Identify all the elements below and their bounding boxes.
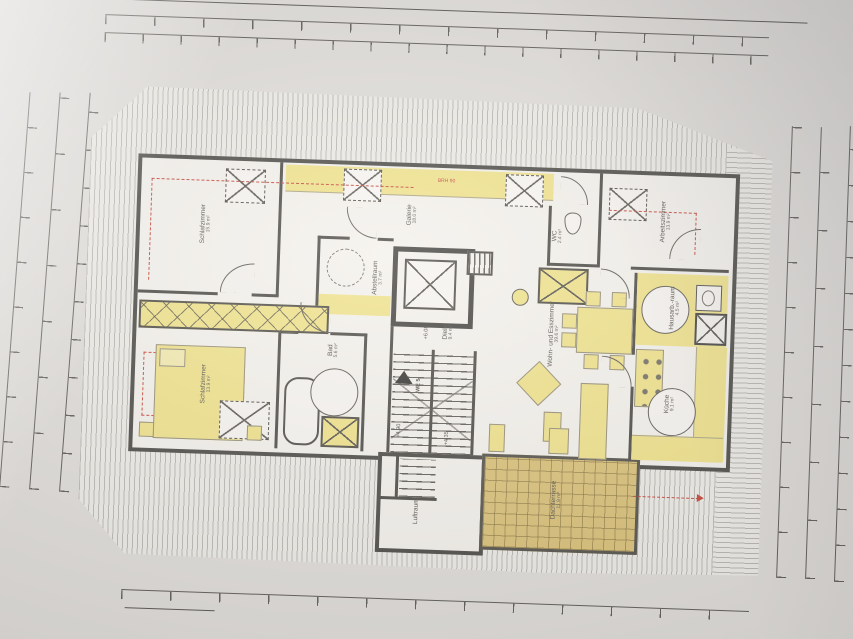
room-label-luftraum: Luftraum: [412, 498, 420, 524]
nightstand: [139, 422, 155, 438]
room-label-galerie: Galerie 18.0 m²: [406, 204, 420, 225]
pillow: [159, 348, 186, 367]
tilted-drawing: BRH 90 BRH 90: [0, 0, 853, 639]
kitchen-counter: [631, 435, 723, 463]
room-label-wohn-esszimmer: Wohn- und Esszimmer 39.6 m²: [547, 301, 563, 367]
room-label-schlafzimmer-1: Schlafzimmer 15.9 m²: [199, 204, 214, 244]
room-label-arbeitszimmer: Arbeitszimmer 13.9 m²: [659, 201, 674, 243]
sofa-element: [488, 424, 505, 453]
sideboard: [578, 383, 609, 460]
dining-table: [576, 307, 634, 355]
floor-plan: BRH 90 BRH 90: [76, 80, 774, 586]
right-dimension-chain-2: [805, 127, 831, 579]
stair-direction-cross: [391, 378, 473, 441]
duct-shaft-icon: [320, 416, 359, 448]
level-marker: +4.35: [444, 431, 450, 445]
chair: [583, 354, 599, 370]
wall: [378, 238, 394, 242]
chair: [562, 313, 578, 329]
room-label-kueche: Küche 9.1 m²: [663, 395, 677, 414]
elevator-icon: [403, 259, 457, 311]
level-marker: +6.08: [423, 325, 429, 339]
room-label-abstellraum: Abstellraum 3.7 m²: [371, 260, 385, 295]
photographed-floor-plan: BRH 90 BRH 90: [0, 0, 853, 639]
duct-shaft-icon: [538, 267, 589, 305]
sofa-element: [548, 428, 569, 455]
room-label-hausarbeitsraum: Hausarb.-raum 4.5 m²: [668, 286, 683, 330]
right-dimension-chain-1: [776, 126, 802, 578]
roof-window-icon: [225, 168, 266, 203]
duct-shaft-icon: [694, 313, 727, 346]
roof-window-icon: [505, 174, 544, 207]
roof-window-icon: [609, 188, 648, 221]
entrance-marker-icon: [395, 370, 413, 384]
room-label-dachterrasse: Dachterrasse 11.9 m²: [549, 481, 564, 520]
nightstand: [247, 425, 263, 441]
bottom-border-line: [125, 607, 215, 611]
room-label-wc: WC 2.4 m²: [551, 229, 565, 244]
stairs-lower: [399, 459, 436, 498]
chair: [585, 291, 601, 307]
roof-window-icon: [219, 400, 270, 440]
right-dimension-chain-3: [834, 126, 853, 582]
exit-arrow-head: [697, 494, 704, 502]
parapet-height-note: BRH 90: [438, 178, 456, 185]
unit-label: WE 5: [415, 378, 421, 392]
level-marker: +4.90: [396, 424, 402, 438]
room-label-diele: Diele 9.4 m²: [442, 325, 456, 340]
bottom-dimension-chain: [121, 589, 749, 621]
room-label-schlafzimmer-2: Schlafzimmer 13.9 m²: [199, 364, 214, 404]
room-label-bad: Bad 5.6 m²: [327, 343, 341, 358]
chair: [561, 332, 577, 348]
shaft-icon: [466, 251, 493, 276]
